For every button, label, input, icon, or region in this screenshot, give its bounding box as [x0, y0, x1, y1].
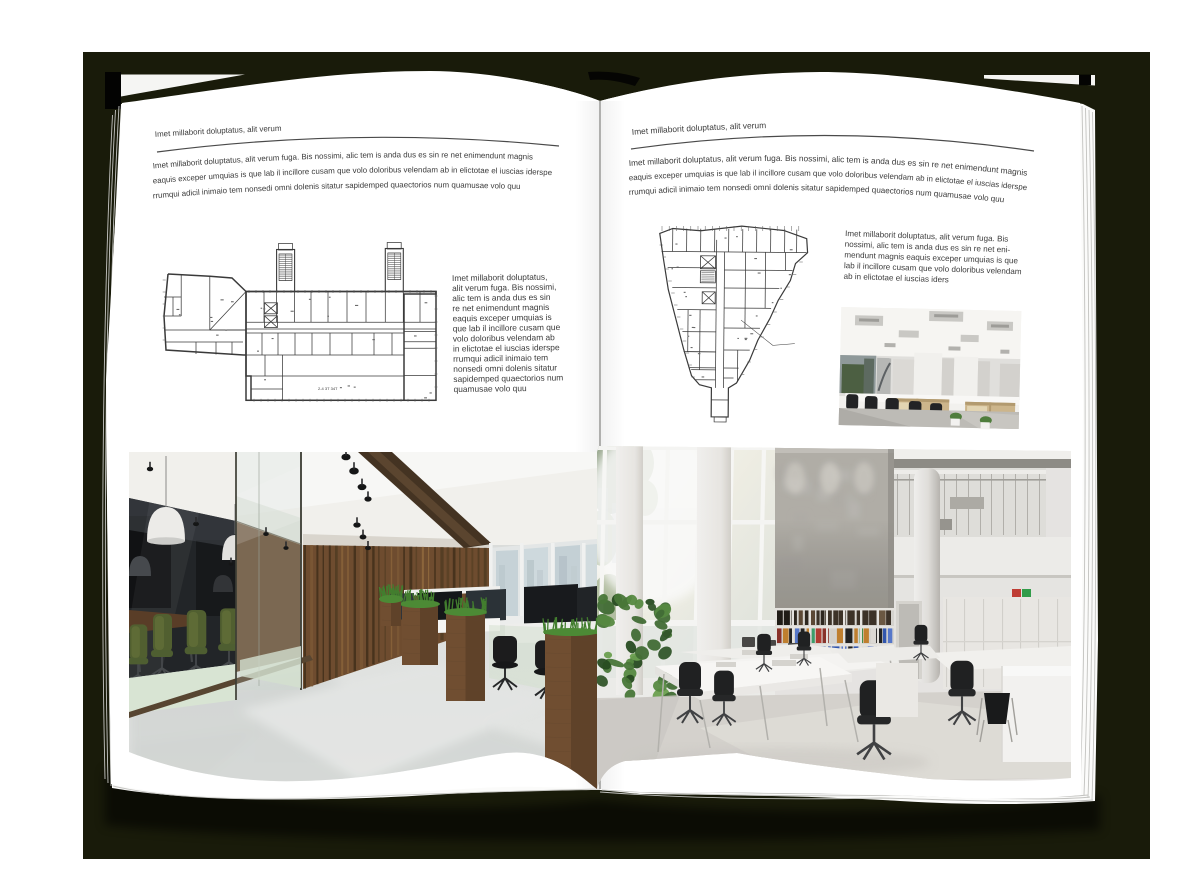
- svg-text:sapidemped quaectorios num: sapidemped quaectorios num: [453, 372, 563, 384]
- svg-text:2-4 3T 34T: 2-4 3T 34T: [318, 386, 338, 391]
- svg-text:quamusae volo quu: quamusae volo quu: [453, 383, 527, 394]
